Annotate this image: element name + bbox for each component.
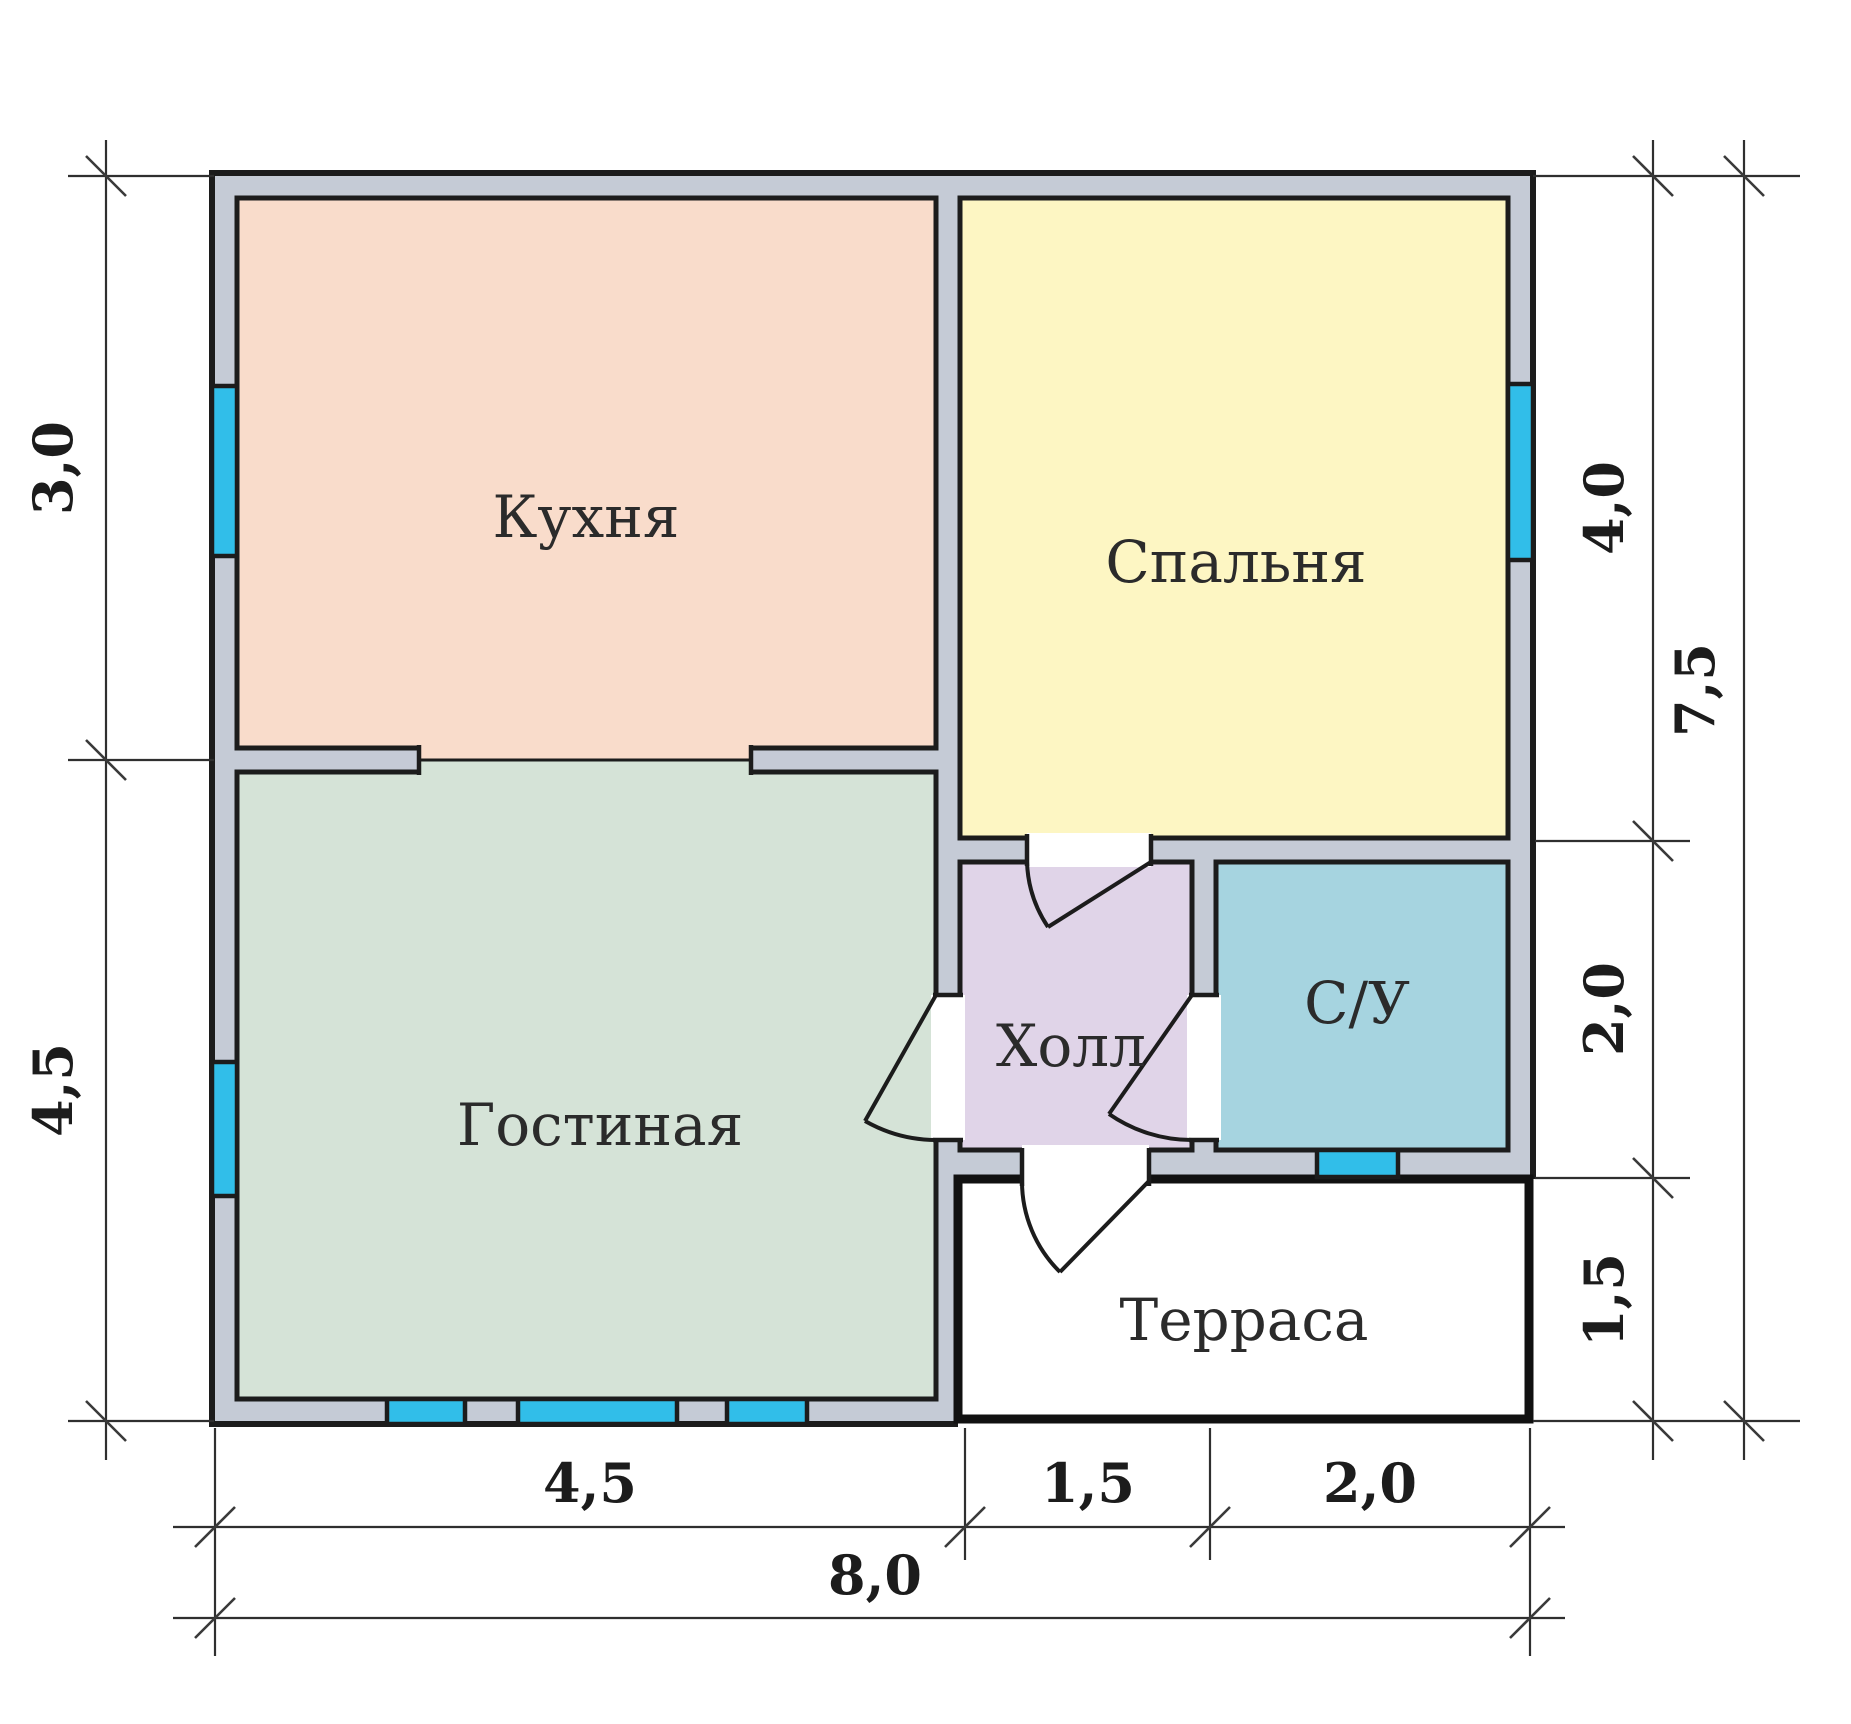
room-bedroom (960, 198, 1508, 838)
dim-label-right-4-0: 4,0 (1572, 461, 1636, 555)
label-bathroom: С/У (1304, 969, 1410, 1037)
label-hall: Холл (996, 1012, 1146, 1080)
window-living-left (212, 1062, 237, 1196)
wall-top (212, 173, 1533, 198)
opening-kitchen-living (419, 745, 751, 775)
window-bedroom-right (1508, 384, 1533, 560)
label-kitchen: Кухня (493, 483, 680, 551)
room-hall (960, 862, 1192, 1150)
dim-label-right-2-0: 2,0 (1572, 962, 1636, 1056)
floor-plan-drawing: 3,0 4,5 4,0 2,0 1,5 7,5 4,5 1,5 2,0 8,0 … (0, 0, 1851, 1724)
dim-label-left-4-5: 4,5 (21, 1043, 85, 1137)
wall-bedroom-bottom (936, 838, 1508, 862)
window-bathroom-bottom (1317, 1150, 1398, 1177)
dim-label-bottom-1-5: 1,5 (1041, 1451, 1135, 1515)
window-living-bottom-3 (727, 1399, 807, 1424)
room-kitchen (237, 198, 936, 748)
wall-kitchen-living-right-stub (751, 748, 936, 772)
door-gap (931, 995, 965, 1140)
room-living (237, 772, 936, 1399)
wall-kitchen-living-left-stub (237, 748, 419, 772)
window-kitchen-left (212, 386, 237, 556)
dim-label-bottom-8-0: 8,0 (828, 1543, 922, 1607)
dim-label-right-1-5: 1,5 (1572, 1253, 1636, 1347)
door-gap (1027, 833, 1151, 867)
door-gap (1187, 995, 1221, 1140)
opening-kitchen-side (419, 745, 751, 760)
wall-right (1508, 173, 1533, 1181)
label-living: Гостиная (457, 1091, 743, 1159)
dim-label-bottom-4-5: 4,5 (543, 1451, 637, 1515)
opening-living-side (419, 760, 751, 775)
label-terrace: Терраса (1120, 1286, 1369, 1354)
floor-plan-page: 3,0 4,5 4,0 2,0 1,5 7,5 4,5 1,5 2,0 8,0 … (0, 0, 1851, 1724)
window-living-bottom-2 (518, 1399, 677, 1424)
dim-label-bottom-2-0: 2,0 (1323, 1451, 1417, 1515)
wall-left (212, 173, 237, 1424)
door-gap (1022, 1145, 1149, 1190)
dim-label-left-3-0: 3,0 (21, 421, 85, 515)
label-bedroom: Спальня (1105, 528, 1366, 596)
window-living-bottom-1 (387, 1399, 465, 1424)
dim-label-right-7-5: 7,5 (1663, 643, 1727, 737)
